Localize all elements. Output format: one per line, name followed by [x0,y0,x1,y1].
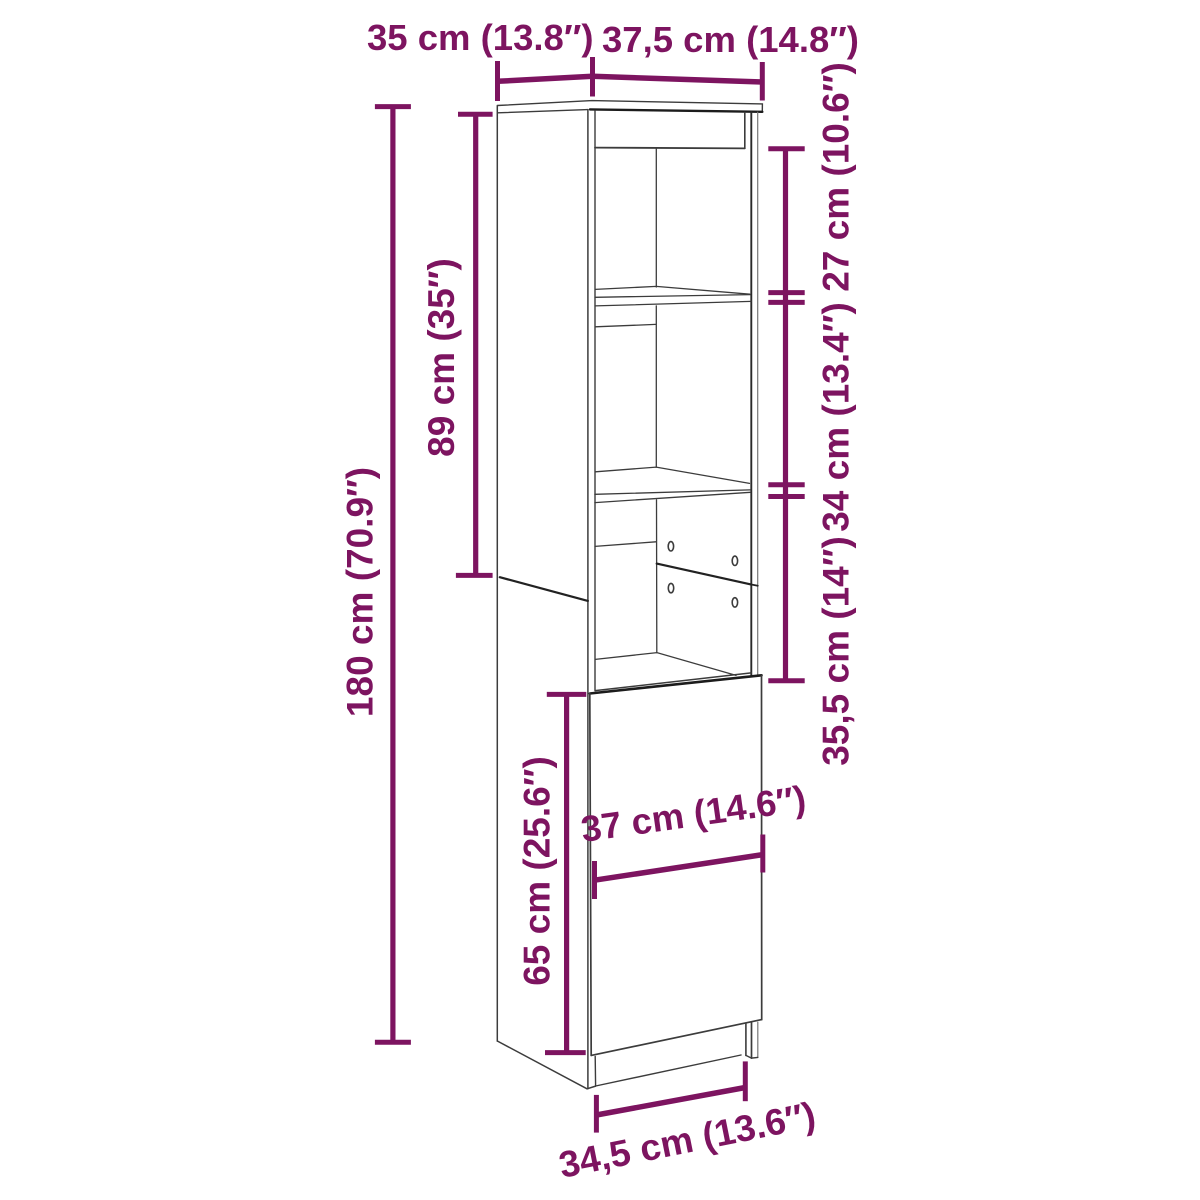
svg-text:65 cm (25.6″): 65 cm (25.6″) [517,756,558,986]
svg-text:35 cm (13.8″): 35 cm (13.8″) [367,17,593,58]
svg-text:27 cm (10.6″): 27 cm (10.6″) [816,62,857,292]
svg-text:34 cm (13.4″): 34 cm (13.4″) [816,302,857,532]
svg-text:35,5 cm (14″): 35,5 cm (14″) [816,536,857,766]
svg-text:180 cm (70.9″): 180 cm (70.9″) [340,467,381,717]
svg-text:37,5 cm (14.8″): 37,5 cm (14.8″) [602,19,859,60]
svg-text:89 cm (35″): 89 cm (35″) [421,258,462,457]
svg-text:37 cm (14.6″): 37 cm (14.6″) [578,778,808,850]
